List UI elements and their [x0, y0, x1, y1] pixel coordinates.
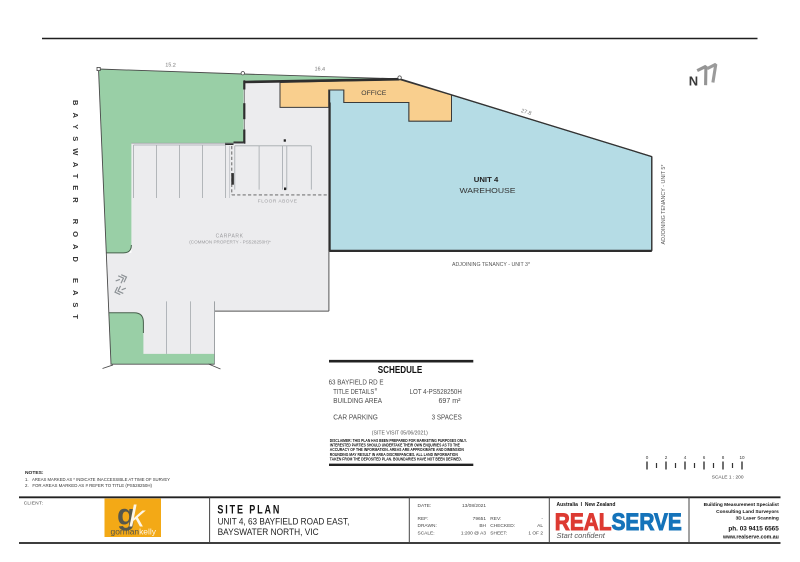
svg-text:1:200 @ A3: 1:200 @ A3 [461, 531, 486, 537]
svg-text:UNIT 4: UNIT 4 [474, 175, 499, 184]
svg-text:6: 6 [703, 455, 706, 460]
svg-text:ph. 03 9415 6565: ph. 03 9415 6565 [728, 526, 779, 533]
svg-text:SCHEDULE: SCHEDULE [378, 365, 423, 376]
svg-text:WAREHOUSE: WAREHOUSE [460, 188, 516, 195]
svg-text:NOTES:: NOTES: [25, 470, 44, 476]
svg-text:SCALE 1 : 200: SCALE 1 : 200 [712, 475, 744, 481]
svg-text:SITE PLAN: SITE PLAN [217, 505, 281, 517]
svg-text:3D Laser Scanning: 3D Laser Scanning [736, 515, 779, 521]
svg-text:(SITE VISIT 05/06/2021): (SITE VISIT 05/06/2021) [372, 431, 428, 437]
svg-text:UNIT 4, 63 BAYFIELD ROAD EAST,: UNIT 4, 63 BAYFIELD ROAD EAST, [218, 517, 350, 527]
svg-text:2: 2 [665, 455, 668, 460]
svg-text:-: - [541, 517, 543, 522]
svg-text:4: 4 [684, 455, 687, 460]
svg-text:gormankelly: gormankelly [111, 527, 157, 536]
svg-text:ADJOINING TENANCY - UNIT 3*: ADJOINING TENANCY - UNIT 3* [452, 262, 530, 268]
svg-text:DRAWN:: DRAWN: [418, 523, 437, 529]
svg-text:Building Measurement Specialis: Building Measurement Specialist [704, 502, 780, 508]
svg-text:10: 10 [739, 455, 745, 460]
svg-text:3 SPACES: 3 SPACES [432, 415, 462, 422]
svg-text:REF:: REF: [418, 516, 429, 522]
svg-text:FLOOR ABOVE: FLOOR ABOVE [258, 199, 298, 205]
svg-text:Consulting Land Surveyors: Consulting Land Surveyors [716, 509, 779, 515]
svg-text:LOT 4-PS528250H: LOT 4-PS528250H [410, 389, 462, 396]
svg-text:1 OF 2: 1 OF 2 [528, 531, 543, 537]
svg-text:CHECKED:: CHECKED: [490, 523, 515, 529]
svg-text:BUILDING AREA: BUILDING AREA [333, 398, 382, 405]
svg-text:13/08/2021: 13/08/2021 [462, 503, 486, 509]
svg-text:CLIENT:: CLIENT: [24, 500, 44, 505]
svg-text:REV:: REV: [490, 516, 501, 522]
svg-text:N: N [689, 74, 698, 89]
svg-text:27.8: 27.8 [520, 108, 532, 117]
svg-text:ADJOINING TENANCY - UNIT 5*: ADJOINING TENANCY - UNIT 5* [661, 164, 667, 244]
svg-text:63 BAYFIELD RD E: 63 BAYFIELD RD E [329, 380, 384, 387]
svg-text:79651: 79651 [473, 516, 487, 522]
svg-text:www.realserve.com.au: www.realserve.com.au [722, 534, 779, 540]
svg-text:0: 0 [646, 455, 649, 460]
svg-text:AL: AL [537, 523, 543, 529]
svg-text:15.2: 15.2 [165, 62, 176, 68]
svg-text:SHEET:: SHEET: [490, 531, 507, 537]
svg-text:TITLE DETAILS: TITLE DETAILS [333, 389, 374, 396]
svg-text:BAYSWATER NORTH, VIC: BAYSWATER NORTH, VIC [218, 527, 320, 537]
svg-text:#: # [375, 387, 378, 392]
svg-text:2. FOR AREAS MARKED AS # REF: 2. FOR AREAS MARKED AS # REFER TO TITLE … [25, 483, 153, 488]
svg-text:OFFICE: OFFICE [361, 90, 386, 97]
svg-text:SCALE:: SCALE: [418, 531, 435, 537]
svg-text:1. AREAS MARKED AS * INDICAT: 1. AREAS MARKED AS * INDICATE INACCESSIB… [25, 477, 170, 482]
svg-text:Start confident: Start confident [557, 531, 606, 540]
svg-text:BH: BH [479, 523, 486, 529]
svg-text:BAYSWATER ROAD EAST: BAYSWATER ROAD EAST [71, 100, 80, 326]
svg-text:697 m²: 697 m² [439, 398, 462, 405]
svg-text:TAKEN FROM THE DEPOSITED PLAN.: TAKEN FROM THE DEPOSITED PLAN. BOUNDARIE… [330, 456, 462, 461]
svg-text:(COMMON PROPERTY - PS528250H)*: (COMMON PROPERTY - PS528250H)* [189, 240, 271, 245]
svg-text:DATE:: DATE: [418, 503, 432, 509]
svg-text:Australia I New Zealand: Australia I New Zealand [557, 502, 616, 508]
svg-text:8: 8 [722, 455, 725, 460]
svg-text:CAR PARKING: CAR PARKING [333, 415, 378, 422]
svg-text:16.4: 16.4 [314, 66, 325, 72]
